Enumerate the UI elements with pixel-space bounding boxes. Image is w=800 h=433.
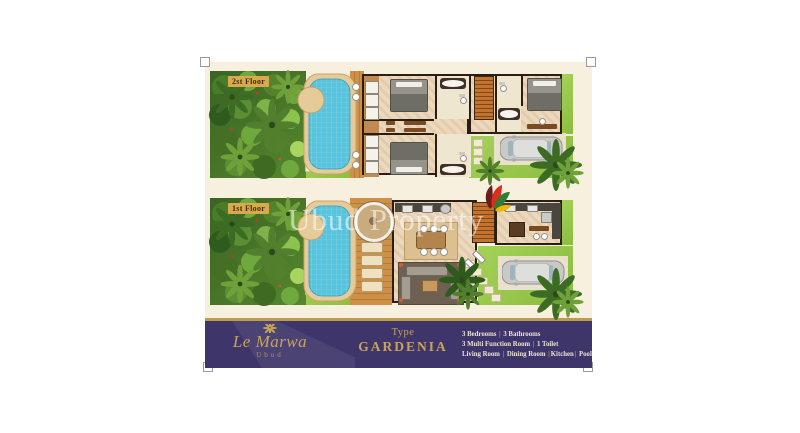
floor-label-2: 2st Floor (228, 76, 269, 87)
sun-lounger (361, 242, 383, 253)
floorplan-2nd-floor: 2st Floor (210, 71, 573, 178)
building-suites (362, 74, 469, 175)
toilet (459, 152, 465, 160)
feature-line-1: 3 Bedrooms | 3 Bathrooms (462, 330, 590, 340)
palm-tree (480, 163, 500, 179)
palm-tree (448, 266, 478, 302)
flower-logo (480, 183, 512, 213)
floor-label-1: 1st Floor (228, 203, 269, 214)
brand-location: Ubud (215, 351, 325, 359)
toilet (499, 82, 505, 90)
type-prefix: Type (348, 327, 458, 338)
round-daybed (354, 202, 394, 242)
sun-lounger (361, 268, 383, 279)
feature-line-2: 3 Multi Function Room | 1 Toilet (462, 340, 590, 350)
palm-tree (540, 282, 574, 308)
bathtub (498, 108, 520, 120)
brand-name: Le Marwa (215, 333, 325, 351)
garden-illustration (210, 71, 306, 178)
garden-illustration (210, 198, 306, 305)
bathtub (440, 78, 466, 89)
swimming-pool (296, 72, 360, 176)
footer-bar: Le Marwa Ubud Type GARDENIA 3 Bedrooms |… (205, 321, 592, 368)
dining-table (416, 231, 446, 249)
staircase (474, 76, 494, 120)
toilet (459, 94, 465, 102)
palm-tree (540, 151, 574, 179)
brochure-page: 2st Floor (0, 0, 800, 433)
sun-lounger (361, 281, 383, 292)
brand-logo: Le Marwa Ubud (215, 324, 325, 359)
floorplan-1st-floor: 1st Floor (210, 198, 573, 305)
building-master (469, 74, 562, 134)
coffee-table (422, 280, 438, 292)
bathtub (440, 164, 466, 175)
sofa (401, 276, 411, 300)
type-name: GARDENIA (348, 339, 458, 355)
bed (390, 79, 428, 112)
bed (390, 142, 428, 175)
bed (527, 78, 562, 111)
swimming-pool (296, 199, 360, 303)
type-block: Type GARDENIA (348, 327, 458, 355)
corner-handle (200, 57, 210, 67)
feature-line-3: Living Room | Dining Room |Kitchen| Pool (462, 350, 590, 360)
features-list: 3 Bedrooms | 3 Bathrooms 3 Multi Functio… (462, 330, 590, 360)
corner-handle (586, 57, 596, 67)
sun-lounger (361, 255, 383, 266)
kitchen-island (509, 222, 525, 237)
sofa (406, 266, 448, 276)
